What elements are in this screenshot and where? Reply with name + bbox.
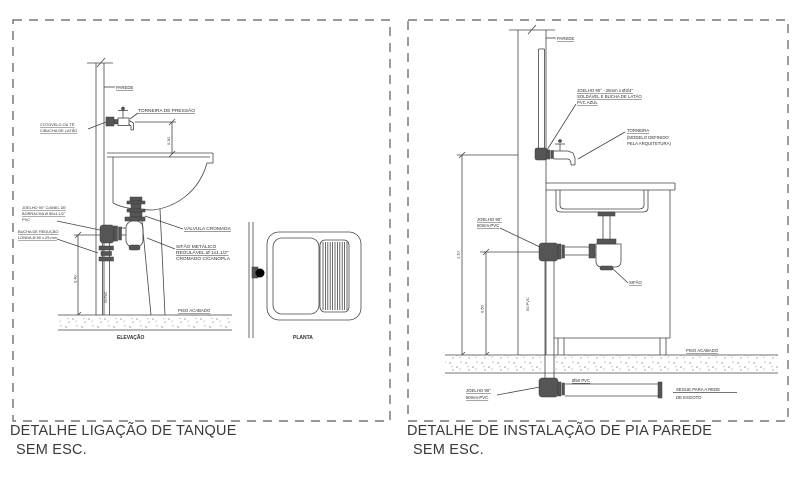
drain-elbow-lower-label-line2: 50mm-PVC	[466, 395, 488, 400]
faucet-label-line2: (MODELO DEFINIDO	[627, 135, 669, 140]
total-height-dim-text: 1.10	[456, 250, 461, 259]
water-elbow-label-line3: PVC AZUL	[577, 100, 598, 105]
height-dimensions	[457, 152, 539, 358]
tank-elevation-drawing	[57, 58, 232, 330]
drain-elbow-label-line2: BORRACHA Ø 50x1.1/2"	[22, 211, 66, 216]
counter-and-basin	[546, 183, 675, 239]
faucet-height-dim-text: 0.30	[166, 136, 171, 145]
finished-floor	[445, 355, 778, 373]
tank-profile	[107, 153, 213, 315]
left-riser-pipe-label: 50 PVC	[104, 291, 108, 303]
drain-elbow-label-line3: PVC	[22, 217, 30, 222]
plan-view-label: PLANTA	[293, 335, 313, 341]
tank-plan-drawing	[249, 222, 361, 338]
metal-trap-label-line2: REGULÁVEL Ø 1x1.1/2"	[176, 249, 229, 256]
pressure-faucet	[88, 107, 138, 130]
drain-height-dim-text: 0.50	[480, 304, 485, 313]
drain-elbow-and-riser	[99, 225, 122, 315]
tank-scale-note: SEM ESC.	[10, 441, 237, 460]
wall-lines	[87, 58, 115, 315]
drain-elbow-and-riser	[539, 243, 565, 261]
water-elbow-label-line1: JOELHO 90° - 25mm x Ø3/4"	[577, 88, 633, 93]
metal-trap-label-line3: CROMADO C/CANOPLA	[176, 256, 231, 262]
sewer-note-line2: DE ESGOTO	[676, 395, 702, 400]
sink-scale-note: SEM ESC.	[407, 441, 712, 460]
sink-caption-block: DETALHE DE INSTALAÇÃO DE PIA PAREDE SEM …	[407, 422, 712, 460]
washboard-ribs	[323, 242, 347, 310]
chrome-valve-label: VÁLVULA CROMADA	[184, 225, 232, 232]
tank-detail-panel: PAREDE TORNEIRA DE PRESSÃO COTOVELO OU T…	[13, 20, 390, 421]
faucet-label-line1: TORNEIRA	[627, 128, 649, 133]
metal-trap-label-line1: SIFÃO METÁLICO	[176, 243, 217, 250]
tank-panel-border	[13, 20, 390, 421]
drain-elbow-upper-label-line1: JOELHO 90°	[477, 217, 502, 222]
valve-and-trap	[122, 197, 146, 250]
drain-elbow-upper-label-line2: 50mm-PVC	[477, 223, 499, 228]
drain-elbow-lower-label-line1: JOELHO 90°	[466, 388, 491, 393]
trap-label: SIFÃO	[629, 280, 643, 285]
drain-elbow-label-line1: JOELHO 90° C/ANEL DE	[22, 205, 66, 210]
tank-caption: DETALHE LIGAÇÃO DE TANQUE	[10, 422, 237, 441]
riser-pipe-label: 50 PVC	[525, 297, 530, 311]
brass-elbow-label-line1: COTOVELO OU TÊ	[40, 122, 75, 127]
bushing-label-line2: LONGA Ø 50 x 25 mm	[18, 235, 57, 240]
pressure-faucet-label: TORNEIRA DE PRESSÃO	[138, 107, 195, 114]
sink-detail-drawing	[445, 25, 778, 398]
water-pipe-and-faucet	[535, 49, 575, 165]
tank-caption-block: DETALHE LIGAÇÃO DE TANQUE SEM ESC.	[10, 422, 237, 460]
faucet-label-line3: PELA ARQUITETURA)	[627, 141, 672, 146]
drawing-sheet: PAREDE TORNEIRA DE PRESSÃO COTOVELO OU T…	[0, 0, 800, 479]
water-elbow-label-line2: SOLDÁVEL E BUCHA DE LATÃO	[577, 94, 642, 99]
wall-label: PAREDE	[116, 85, 133, 90]
finished-floor	[58, 315, 232, 330]
wall-label: PAREDE	[557, 36, 574, 41]
riser-height-dim-text: 0.40	[73, 274, 78, 283]
right-floor-label: PISO ACABADO	[686, 348, 719, 353]
brass-elbow-label-line2: C/BUCHA DE LATÃO	[40, 128, 77, 133]
bushing-label-line1: BUCHA DE REDUÇÃO	[18, 229, 58, 234]
sink-detail-panel: PAREDE JOELHO 90° - 25mm x Ø3/4" SOLDÁVE…	[408, 20, 788, 421]
elevation-view-label: ELEVAÇÃO	[117, 334, 145, 341]
sink-caption: DETALHE DE INSTALAÇÃO DE PIA PAREDE	[407, 422, 712, 441]
bottle-trap	[565, 239, 621, 270]
plumbing-details-svg: PAREDE TORNEIRA DE PRESSÃO COTOVELO OU T…	[0, 0, 800, 479]
left-floor-label: PISO ACABADO	[178, 308, 211, 313]
sewer-note-line1: SEGUE PARA A REDE	[676, 387, 720, 392]
plan-faucet	[252, 267, 265, 278]
sewer-pipe-label: Ø50 PVC	[572, 378, 590, 383]
